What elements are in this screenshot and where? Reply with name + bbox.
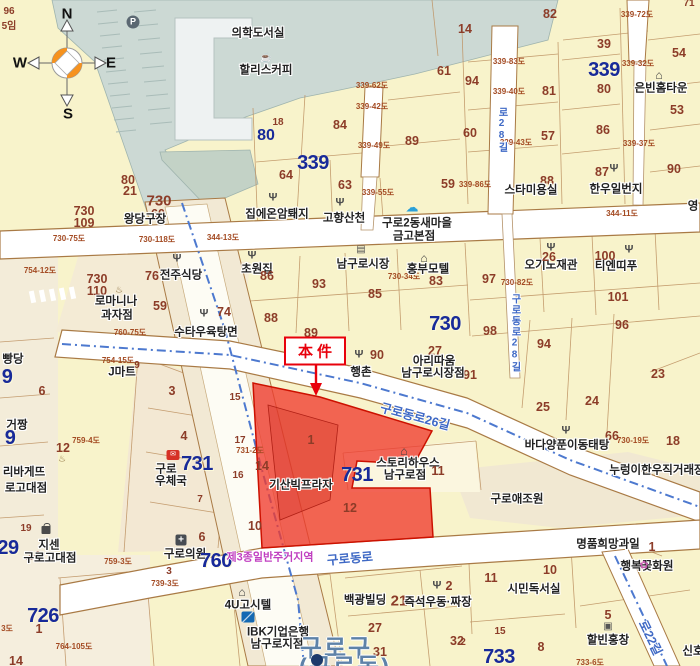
- road-parcel-label: 754-15도: [102, 357, 134, 365]
- fork-icon: Ψ: [200, 309, 209, 320]
- parcel-number: 39: [597, 38, 611, 51]
- poi-label: 왕당구장: [124, 214, 166, 226]
- bag-icon: [42, 526, 51, 534]
- parcel-number: 83: [429, 275, 443, 288]
- fork-icon: Ψ: [562, 426, 571, 437]
- fork-icon: Ψ: [547, 243, 556, 254]
- poi-label: 은빈홈타운: [635, 83, 688, 95]
- parcel-number: 86: [260, 270, 274, 283]
- block-number-731: 731: [181, 454, 213, 474]
- parcel-number: 12: [56, 442, 70, 455]
- road-parcel-label: 339-49도: [358, 142, 390, 150]
- parcel-number: 8: [538, 641, 545, 654]
- parcel-number: 14: [9, 655, 23, 666]
- parcel-number: 63: [338, 179, 352, 192]
- fork-icon: Ψ: [269, 193, 278, 204]
- parcel-number: 101: [608, 291, 629, 304]
- compass-letter: W: [13, 56, 27, 71]
- road-parcel-label: 754-12도: [24, 267, 56, 275]
- poi-label: 구로고대점: [24, 553, 77, 565]
- road-parcel-label: 731-2도: [236, 447, 264, 455]
- road-name-gurodongro28gil: 구로동로28길: [509, 294, 519, 373]
- poi-label: 집에온암퇘지: [245, 209, 308, 221]
- poi-label: 리바게뜨: [3, 467, 45, 479]
- road-parcel-label: 733-6도: [576, 659, 604, 666]
- parcel-number: 96: [615, 319, 629, 332]
- poi-label: 고향산천: [323, 213, 365, 225]
- basket-icon: ▣: [603, 622, 612, 632]
- parcel-number: 14: [255, 460, 269, 473]
- subject-parcel-number-1: 1: [308, 434, 315, 447]
- poi-label: 로고대점: [5, 483, 47, 495]
- parcel-number: 93: [312, 278, 326, 291]
- poi-label: 남구로시장점: [401, 368, 464, 380]
- parcel-number: 1: [36, 623, 43, 636]
- poi-label: 바다양푼이동태탕: [525, 440, 610, 452]
- parcel-number: 10: [248, 520, 262, 533]
- parcel-number: 11: [484, 572, 497, 585]
- post-icon: ✉: [167, 450, 180, 460]
- road-parcel-label: 339-55도: [362, 189, 394, 197]
- poi-label: 누렁이한우직거래장: [609, 465, 700, 477]
- parcel-number: 94: [537, 338, 551, 351]
- poi-label: 신호: [682, 646, 700, 658]
- poi-label: 명품희망과일: [576, 539, 639, 551]
- poi-label: 지센: [38, 540, 59, 552]
- poi-label: 스타미용실: [505, 185, 558, 197]
- poi-label: 스토리하우스: [376, 458, 439, 470]
- parcel-number: 89: [405, 135, 419, 148]
- block-number-339: 339: [588, 60, 620, 80]
- parcel-number: 91: [463, 369, 477, 382]
- parcel-number: 6: [199, 531, 206, 544]
- parcel-number: 2: [446, 580, 453, 593]
- subject-parcel-annotation: 本件: [284, 337, 346, 366]
- parcel-number: 25: [536, 401, 550, 414]
- parcel-number: 59: [441, 178, 455, 191]
- parcel-number: 90: [667, 163, 681, 176]
- poi-label: 한우일번지: [590, 184, 643, 196]
- parcel-number: 19: [20, 524, 31, 534]
- poi-label: 할빈홍창: [587, 635, 629, 647]
- parcel-number: 2: [460, 638, 466, 648]
- cloud-icon: ☁: [406, 201, 419, 214]
- compass-letter: E: [106, 56, 116, 71]
- road-parcel-label: 739-3도: [151, 580, 179, 588]
- poi-label: 의학도서실: [232, 28, 285, 40]
- poi-label: 구로: [155, 464, 176, 476]
- home-icon: ⌂: [420, 252, 427, 264]
- block-number-731: 731: [341, 465, 373, 485]
- poi-label: 빵당: [2, 354, 23, 366]
- poi-label: 전주식당: [160, 270, 202, 282]
- poi-label: 즉석우동·짜장: [404, 597, 471, 609]
- parcel-number: 5임: [2, 22, 17, 32]
- poi-label: 로마니나: [95, 296, 137, 308]
- parcel-number: 3: [169, 385, 176, 398]
- road-parcel-label: 344-11도: [606, 210, 638, 218]
- fork-icon: Ψ: [173, 254, 182, 265]
- block-number-730: 730: [429, 314, 461, 334]
- fork-icon: Ψ: [433, 581, 442, 592]
- parcel-number: 85: [368, 288, 382, 301]
- road-parcel-label: 339-62도: [356, 82, 388, 90]
- road-parcel-label: 339-40도: [493, 88, 525, 96]
- bread-icon: ♨: [115, 286, 123, 295]
- parcel-number: 74: [217, 306, 231, 319]
- parcel-number: 21: [123, 185, 137, 198]
- block-number-726: 726: [27, 606, 59, 626]
- poi-label: 할리스커피: [240, 65, 293, 77]
- road-parcel-label: 339-86도: [459, 181, 491, 189]
- road-parcel-label: 759-4도: [72, 437, 100, 445]
- parcel-number: 97: [482, 273, 496, 286]
- parcel-number: 76: [145, 270, 159, 283]
- parcel-number: 5: [605, 609, 612, 622]
- parcel-number: 10: [543, 564, 557, 577]
- road-parcel-label: 339-42도: [356, 103, 388, 111]
- road-parcel-label: 764-105도: [56, 643, 93, 651]
- parcel-number: 80: [597, 83, 611, 96]
- parcel-number: 53: [670, 104, 684, 117]
- parcel-number: 82: [543, 8, 557, 21]
- block-number-733: 733: [483, 647, 515, 666]
- parcel-number: 61: [437, 65, 451, 78]
- road-name-gurodongro26gil: 구로동로26길: [379, 402, 451, 433]
- road-parcel-label: 730-82도: [501, 279, 533, 287]
- market-icon: ▤: [356, 245, 365, 255]
- parcel-number: 27: [368, 622, 382, 635]
- home-icon: ⌂: [655, 69, 662, 81]
- poi-label: 과자점: [101, 310, 133, 322]
- parcel-number: 1: [649, 541, 656, 554]
- parcel-number: 109: [74, 217, 95, 230]
- block-number-339: 339: [297, 153, 329, 173]
- road-name-gurodongro: 구로동로: [327, 551, 374, 567]
- parcel-number: 57: [541, 130, 555, 143]
- poi-label: 구로애조원: [491, 494, 544, 506]
- parcel-number: 90: [370, 349, 384, 362]
- ibk-icon: [242, 612, 255, 623]
- parcel-number: 94: [465, 75, 479, 88]
- clinic-icon: +: [176, 535, 187, 546]
- parcel-number: 23: [651, 368, 665, 381]
- labels-layer: 965임NWES의학도서실할리스커피1482713961339809454은빈홈…: [0, 0, 700, 666]
- poi-kisan-big-plaza: 기산빅프라자: [269, 480, 332, 492]
- fork-icon: Ψ: [336, 198, 345, 209]
- parcel-number: 6: [39, 385, 46, 398]
- poi-label: 남구로지점: [251, 639, 304, 651]
- poi-label: 남구로점: [384, 470, 426, 482]
- road-name-label: 로22길: [636, 619, 663, 658]
- road-parcel-label: 339-37도: [623, 140, 655, 148]
- road-parcel-label: 730-19도: [617, 437, 649, 445]
- parcel-number: 64: [279, 169, 293, 182]
- parcel-number: 15: [229, 393, 240, 403]
- flower-icon: ✿: [639, 561, 648, 572]
- road-parcel-label: 339-72도: [621, 11, 653, 19]
- parcel-number: 11: [431, 465, 444, 478]
- subject-parcel-number-12: 12: [343, 502, 357, 515]
- poi-label: 시민독서실: [508, 584, 561, 596]
- parcel-number: 17: [234, 436, 245, 446]
- parcel-number: 54: [672, 47, 686, 60]
- parcel-number: 98: [483, 325, 497, 338]
- road-name-label: 로28길: [496, 107, 506, 153]
- block-number: 80: [257, 128, 275, 144]
- compass-letter: S: [63, 107, 73, 122]
- parcel-number: 100: [595, 250, 616, 263]
- road-parcel-label: 759-3도: [104, 558, 132, 566]
- fork-icon: Ψ: [355, 350, 364, 361]
- bread-icon: ♨: [58, 455, 66, 464]
- compass-letter: N: [62, 7, 73, 22]
- block-number: 9: [5, 428, 16, 448]
- coffee-icon: ☕: [260, 54, 272, 64]
- poi-label: 금고본점: [393, 231, 435, 243]
- parcel-number: 24: [585, 395, 599, 408]
- road-parcel-label: 3도: [1, 625, 13, 633]
- poi-label: 영: [688, 201, 699, 213]
- poi-label: 남구로시장: [337, 259, 390, 271]
- parcel-number: 7: [197, 495, 203, 505]
- road-parcel-label: 760-75도: [114, 329, 146, 337]
- poi-label: 백광빌딩: [344, 595, 386, 607]
- parcel-number: 3: [166, 567, 172, 577]
- poi-label: 수타우육탕면: [174, 327, 237, 339]
- block-number: 9: [2, 367, 13, 387]
- poi-label: 아리따움: [413, 356, 455, 368]
- fork-icon: Ψ: [625, 245, 634, 256]
- road-parcel-label: 344-13도: [207, 234, 239, 242]
- parcel-number: 88: [264, 312, 278, 325]
- parcel-number: 87: [595, 166, 609, 179]
- road-parcel-label: 339-32도: [622, 60, 654, 68]
- poi-label: 구로2동새마을: [382, 218, 452, 230]
- parcel-number: 14: [458, 23, 472, 36]
- parcel-number: 59: [153, 300, 167, 313]
- parcel-number: 84: [333, 119, 347, 132]
- block-number: 29: [0, 538, 19, 558]
- poi-label: J마트: [108, 367, 136, 379]
- home-icon: ⌂: [238, 586, 245, 598]
- parcel-number: 86: [596, 124, 610, 137]
- parcel-number: 60: [463, 127, 477, 140]
- road-parcel-label: 730-75도: [53, 235, 85, 243]
- road-parcel-label: 730-118도: [139, 236, 175, 244]
- zoning-label: 제3종일반주거지역: [226, 553, 313, 564]
- subway-icon: [311, 654, 323, 666]
- home-icon: ⌂: [400, 445, 407, 457]
- parcel-number: 16: [232, 471, 243, 481]
- parcel-number: 71: [683, 0, 694, 9]
- poi-label: 행촌: [350, 367, 371, 379]
- road-parcel-label: 339-83도: [493, 58, 525, 66]
- poi-label: 티엔띠푸: [595, 261, 637, 273]
- poi-label: 4U고시텔: [225, 600, 271, 612]
- parcel-number: 18: [666, 435, 680, 448]
- parcel-number: 9: [134, 361, 140, 371]
- parcel-number: 81: [542, 85, 556, 98]
- parcel-number: 96: [3, 7, 14, 17]
- parcel-number: 15: [494, 627, 505, 637]
- map-canvas: 965임NWES의학도서실할리스커피1482713961339809454은빈홈…: [0, 0, 700, 666]
- poi-label: 우체국: [155, 476, 187, 488]
- parcel-number: 4: [181, 430, 188, 443]
- fork-icon: Ψ: [248, 251, 257, 262]
- fork-icon: Ψ: [610, 164, 619, 175]
- parking-icon: P: [127, 16, 140, 29]
